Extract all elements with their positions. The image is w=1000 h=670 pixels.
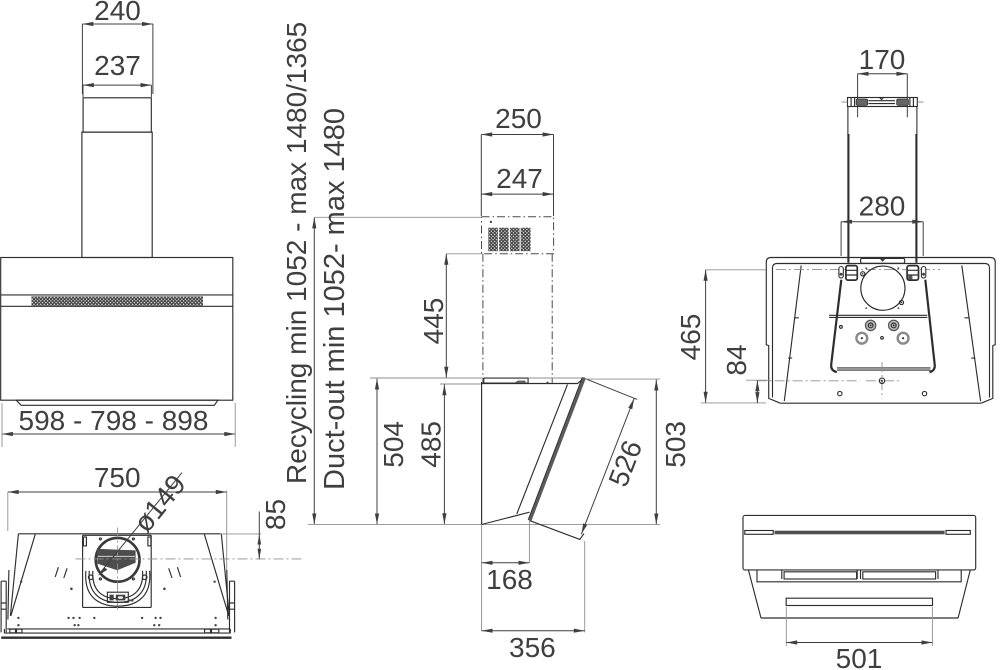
svg-text:356: 356 (509, 632, 556, 663)
svg-text:237: 237 (94, 50, 141, 81)
svg-text:170: 170 (859, 44, 906, 75)
svg-text:750: 750 (94, 462, 141, 493)
svg-text:280: 280 (859, 191, 906, 222)
svg-text:240: 240 (94, 0, 141, 26)
svg-text:526: 526 (602, 436, 648, 491)
svg-text:168: 168 (486, 564, 533, 595)
svg-text:503: 503 (660, 421, 691, 468)
svg-text:85: 85 (260, 499, 291, 530)
svg-text:501: 501 (836, 643, 883, 670)
svg-text:Duct-out min 1052- max 1480: Duct-out min 1052- max 1480 (319, 108, 351, 490)
svg-text:465: 465 (675, 314, 706, 361)
svg-text:485: 485 (416, 421, 447, 468)
svg-text:445: 445 (418, 298, 449, 345)
svg-text:250: 250 (495, 103, 542, 134)
svg-text:598 - 798 - 898: 598 - 798 - 898 (19, 405, 209, 436)
svg-text:Recycling min 1052 - max 1480/: Recycling min 1052 - max 1480/1365 (281, 22, 312, 484)
svg-text:84: 84 (721, 344, 752, 375)
svg-text:247: 247 (496, 163, 543, 194)
svg-text:504: 504 (378, 421, 409, 468)
